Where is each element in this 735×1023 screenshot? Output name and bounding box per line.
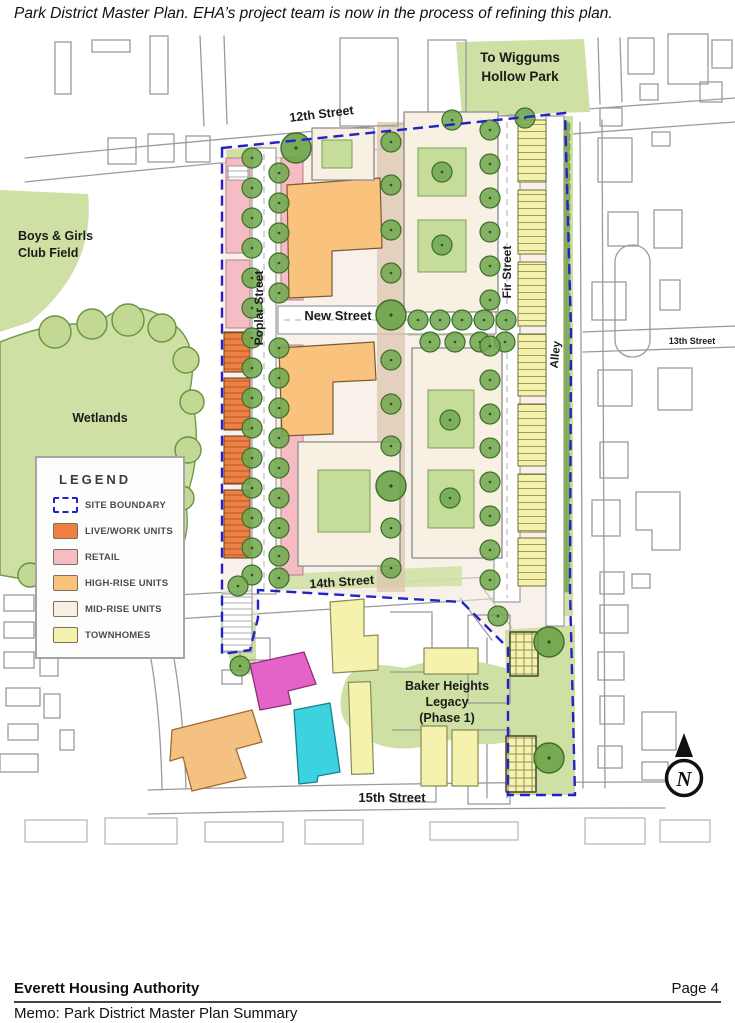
street-15th-label: 15th Street xyxy=(358,790,426,805)
figure-caption: Park District Master Plan. EHA’s project… xyxy=(14,5,613,23)
footer-memo-line: Memo: Park District Master Plan Summary xyxy=(14,1005,297,1022)
legend-label: RETAIL xyxy=(85,552,120,563)
legend-item: LIVE/WORK UNITS xyxy=(53,523,175,539)
legend-swatch xyxy=(53,549,78,565)
footer-rule xyxy=(14,1001,721,1003)
footer-page-number: Page 4 xyxy=(671,980,719,997)
legend-item: MID-RISE UNITS xyxy=(53,601,175,617)
legend-item: SITE BOUNDARY xyxy=(53,497,175,513)
legend-label: LIVE/WORK UNITS xyxy=(85,526,173,537)
legend-title: LEGEND xyxy=(59,472,175,487)
legend-swatch xyxy=(53,575,78,591)
context-buildings-faint xyxy=(25,818,710,844)
legend-item: RETAIL xyxy=(53,549,175,565)
site-plan-map: To WiggumsHollow Park 12th Street 13th S… xyxy=(0,30,735,870)
club-field-area xyxy=(0,190,89,332)
legend-item: HIGH-RISE UNITS xyxy=(53,575,175,591)
peach-building xyxy=(170,710,262,791)
legend-swatch xyxy=(53,497,78,513)
legend-label: TOWNHOMES xyxy=(85,630,150,641)
street-12th-label: 12th Street xyxy=(289,103,356,125)
cyan-building xyxy=(294,703,340,784)
legend-swatch xyxy=(53,627,78,643)
legend-items: SITE BOUNDARYLIVE/WORK UNITSRETAILHIGH-R… xyxy=(53,497,175,643)
legend-label: MID-RISE UNITS xyxy=(85,604,162,615)
memo-page: Park District Master Plan. EHA’s project… xyxy=(0,0,735,1023)
legend-label: HIGH-RISE UNITS xyxy=(85,578,168,589)
footer-organization: Everett Housing Authority xyxy=(14,980,199,997)
legend-swatch xyxy=(53,523,78,539)
legend-item: TOWNHOMES xyxy=(53,627,175,643)
north-letter: N xyxy=(675,767,692,791)
magenta-building xyxy=(250,652,316,710)
legend-swatch xyxy=(53,601,78,617)
north-arrow: N xyxy=(667,733,702,796)
new-street-label: New Street xyxy=(304,308,372,323)
street-13th-label: 13th Street xyxy=(669,336,716,346)
legend-label: SITE BOUNDARY xyxy=(85,500,166,511)
fir-street-label: Fir Street xyxy=(500,246,514,299)
poplar-street-label: Poplar Street xyxy=(252,271,266,346)
wetlands-label: Wetlands xyxy=(72,411,127,425)
map-legend: LEGEND SITE BOUNDARYLIVE/WORK UNITSRETAI… xyxy=(35,456,185,659)
